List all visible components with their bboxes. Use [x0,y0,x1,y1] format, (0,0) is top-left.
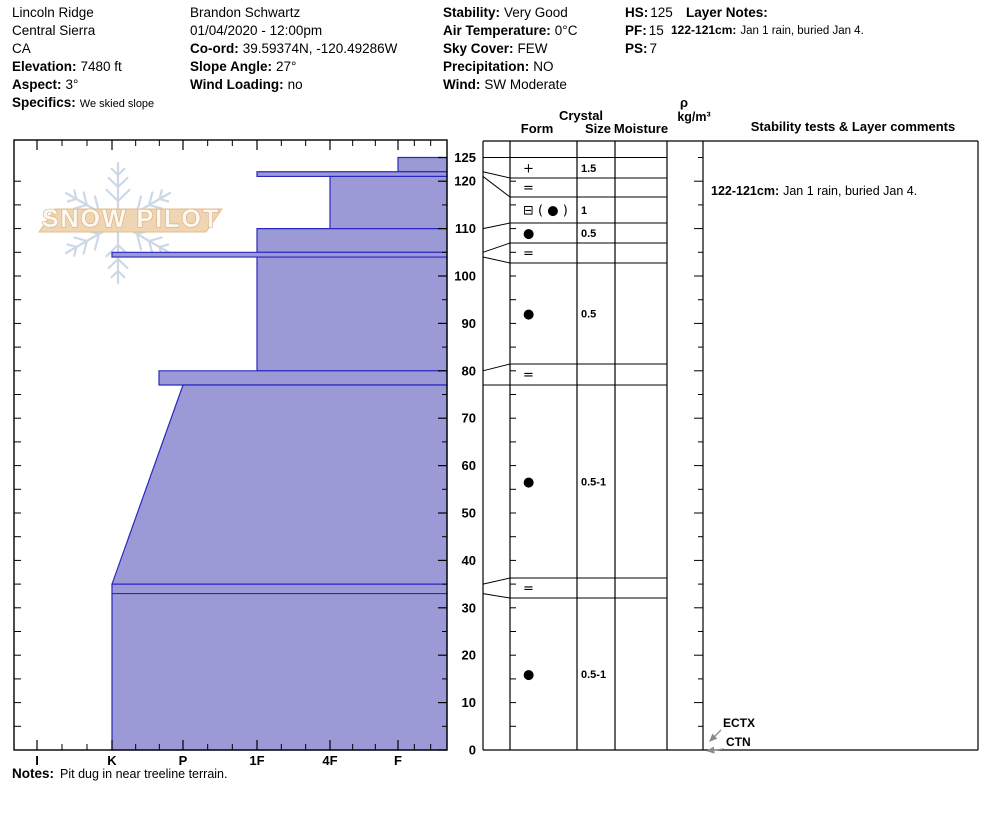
crystal-form-symbol: ● [523,307,534,322]
depth-axis-label: 30 [462,600,476,615]
crystal-form-symbol: ⊟ ( ● ) [523,204,568,219]
depth-axis-label: 60 [462,458,476,473]
depth-axis-label: 40 [462,553,476,568]
depth-axis-label: 20 [462,648,476,663]
hardness-axis-label: 1F [249,753,264,768]
depth-axis-label: 110 [455,221,476,236]
crystal-size-value: 1 [581,205,587,217]
snow-layer [257,172,447,177]
depth-axis-label: 90 [462,316,476,331]
snow-layer [257,229,447,253]
crystal-form-symbol: = [523,181,534,196]
crystal-form-symbol: = [523,582,534,597]
crystal-size-value: 0.5-1 [581,669,606,681]
snow-layer [159,371,447,385]
crystal-form-symbol: ● [523,668,534,683]
snow-layer [257,257,447,371]
hardness-axis-label: P [179,753,188,768]
depth-axis-label: 80 [462,363,476,378]
crystal-form-symbol: = [523,368,534,383]
depth-axis-label: 0 [469,743,476,758]
crystal-form-symbol: + [523,161,534,176]
snow-layer [112,584,447,593]
crystal-size-value: 0.5 [581,228,596,240]
snowpilot-profile-page: Lincoln Ridge Central Sierra CA Elevatio… [0,0,994,840]
crystal-size-value: 1.5 [581,163,596,175]
stability-test-label: ECTX [723,716,755,730]
snow-layer [112,252,447,257]
snow-layer [112,385,447,584]
depth-axis-label: 100 [454,269,476,284]
hardness-axis-label: I [35,753,39,768]
hardness-axis-label: F [394,753,402,768]
depth-axis-label: 120 [454,174,476,189]
crystal-form-symbol: ● [523,475,534,490]
depth-axis-label: 10 [462,695,476,710]
hardness-axis-label: 4F [322,753,337,768]
stability-test-label: CTN [726,735,751,749]
crystal-size-value: 0.5 [581,309,596,321]
snow-layer [330,176,447,228]
crystal-form-symbol: ● [523,227,534,242]
snow-layer [398,158,447,172]
depth-axis-label: 50 [462,506,476,521]
crystal-size-value: 0.5-1 [581,477,606,489]
depth-axis-label: 125 [454,150,476,165]
snow-layer [112,594,447,750]
hardness-axis-label: K [107,753,117,768]
snow-profile-chart: SNOW PILOTIKP1F4FF1251201101009080706050… [0,0,994,840]
crystal-form-symbol: = [523,247,534,262]
depth-axis-label: 70 [462,411,476,426]
logo-text: SNOW PILOT [42,205,220,233]
